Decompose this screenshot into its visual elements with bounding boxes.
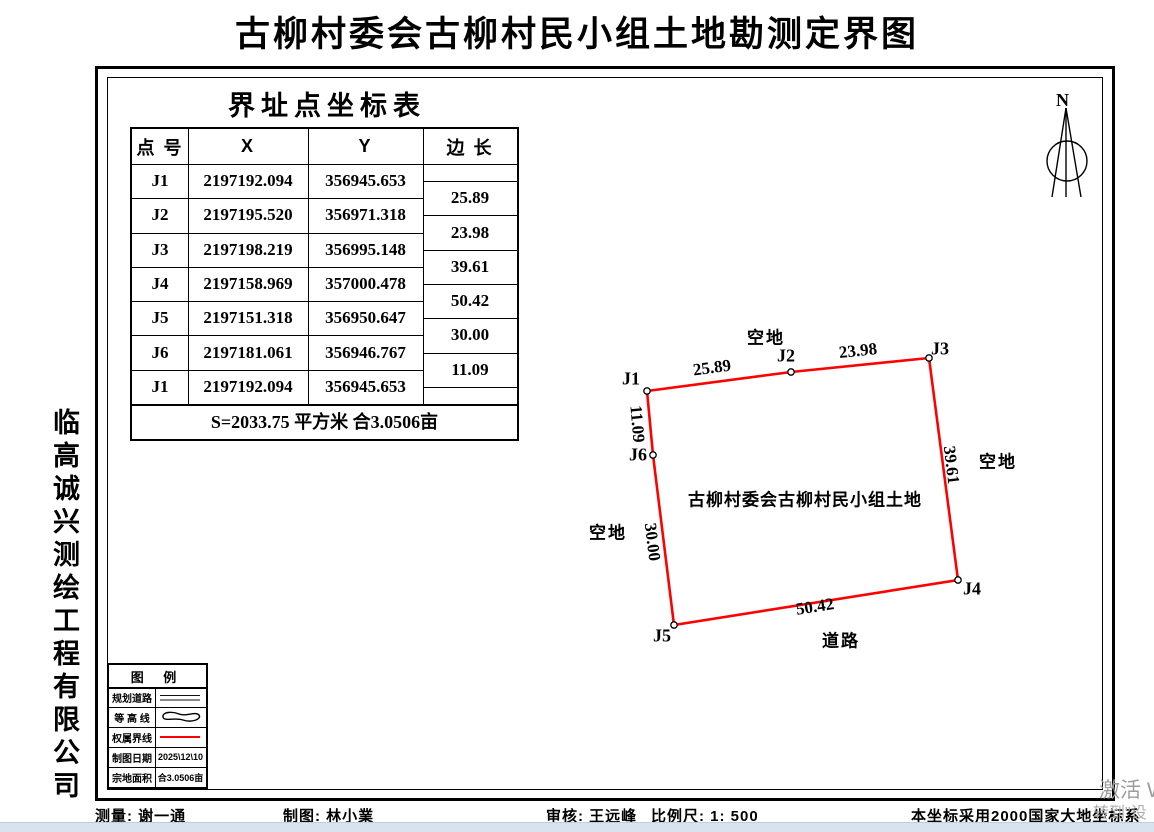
legend-label-4: 宗地面积: [109, 767, 155, 787]
window-bottom-edge: [0, 822, 1154, 832]
coordinate-table-title: 界址点坐标表: [228, 84, 426, 123]
edge-length-label: 23.98: [838, 339, 878, 363]
planned-road-line-icon: [160, 699, 200, 701]
table-row-x: 2197181.061: [188, 335, 308, 369]
legend-symbol-red-line: [155, 727, 206, 747]
legend-label-3: 制图日期: [109, 747, 155, 767]
legend-label-0: 规划道路: [109, 687, 155, 707]
legend-label-1: 等 高 线: [109, 707, 155, 727]
table-row-point-id: J5: [132, 301, 188, 335]
table-hline-edgecol: [423, 387, 517, 388]
legend-vline: [155, 687, 156, 787]
table-edge-length: 50.42: [423, 284, 517, 318]
table-edge-length: 11.09: [423, 353, 517, 387]
table-row-y: 356995.148: [308, 233, 423, 267]
table-row-point-id: J2: [132, 198, 188, 232]
table-row-x: 2197158.969: [188, 267, 308, 301]
table-header-0: 点 号: [132, 129, 188, 164]
landuse-label-0: 空地: [747, 324, 785, 349]
table-row-x: 2197192.094: [188, 370, 308, 404]
legend-symbol-text: 2025\12\10: [155, 747, 206, 767]
windows-activation-watermark-line2: 转到"设: [1093, 799, 1147, 823]
legend-symbol-contour: [155, 707, 206, 727]
table-row-x: 2197198.219: [188, 233, 308, 267]
vertex-label-J2: J2: [777, 346, 795, 367]
edge-length-label: 11.09: [625, 405, 648, 444]
table-row-y: 356946.767: [308, 335, 423, 369]
legend-symbol-double-line: [155, 687, 206, 707]
legend-symbol-text: 合3.0506亩: [155, 767, 206, 787]
parcel-owner-label: 古柳村委会古柳村民小组土地: [688, 486, 922, 511]
table-row-x: 2197151.318: [188, 301, 308, 335]
boundary-point-coordinate-table: 点 号XY边 长J12197192.094356945.653J22197195…: [130, 127, 519, 441]
vertex-label-J1: J1: [622, 369, 640, 390]
table-header-1: X: [188, 129, 308, 164]
table-row-y: 356945.653: [308, 370, 423, 404]
table-row-point-id: J3: [132, 233, 188, 267]
table-row-y: 356950.647: [308, 301, 423, 335]
table-row-x: 2197192.094: [188, 164, 308, 198]
table-row-point-id: J6: [132, 335, 188, 369]
table-row-y: 356971.318: [308, 198, 423, 232]
table-edge-length: 30.00: [423, 318, 517, 352]
table-edge-length: 23.98: [423, 215, 517, 249]
planned-road-line-icon: [160, 695, 200, 697]
company-name-vertical: 临高诚兴测绘工程有限公司: [48, 408, 80, 804]
north-label: N: [1056, 90, 1069, 111]
legend-label-2: 权属界线: [109, 727, 155, 747]
table-row-x: 2197195.520: [188, 198, 308, 232]
table-row-y: 357000.478: [308, 267, 423, 301]
landuse-label-2: 空地: [589, 519, 627, 544]
landuse-label-3: 道路: [822, 627, 860, 652]
page-title: 古柳村委会古柳村民小组土地勘测定界图: [0, 6, 1154, 57]
landuse-label-1: 空地: [979, 448, 1017, 473]
vertex-label-J4: J4: [963, 579, 981, 600]
table-row-y: 356945.653: [308, 164, 423, 198]
table-row-point-id: J4: [132, 267, 188, 301]
table-edge-length: 39.61: [423, 250, 517, 284]
vertex-label-J6: J6: [629, 445, 647, 466]
legend-title: 图 例: [109, 665, 206, 687]
table-header-3: 边 长: [423, 129, 517, 164]
table-edge-length: 25.89: [423, 181, 517, 215]
vertex-label-J5: J5: [653, 626, 671, 647]
table-row-point-id: J1: [132, 370, 188, 404]
ownership-boundary-line-icon: [160, 736, 200, 738]
table-header-2: Y: [308, 129, 423, 164]
vertex-label-J3: J3: [931, 339, 949, 360]
contour-line-icon: [159, 708, 203, 726]
survey-sheet: 古柳村委会古柳村民小组土地勘测定界图 临高诚兴测绘工程有限公司 界址点坐标表 点…: [0, 0, 1154, 832]
legend-box: 图 例规划道路等 高 线权属界线制图日期2025\12\10宗地面积合3.050…: [107, 663, 208, 789]
table-area-summary: S=2033.75 平方米 合3.0506亩: [132, 404, 517, 437]
table-row-point-id: J1: [132, 164, 188, 198]
